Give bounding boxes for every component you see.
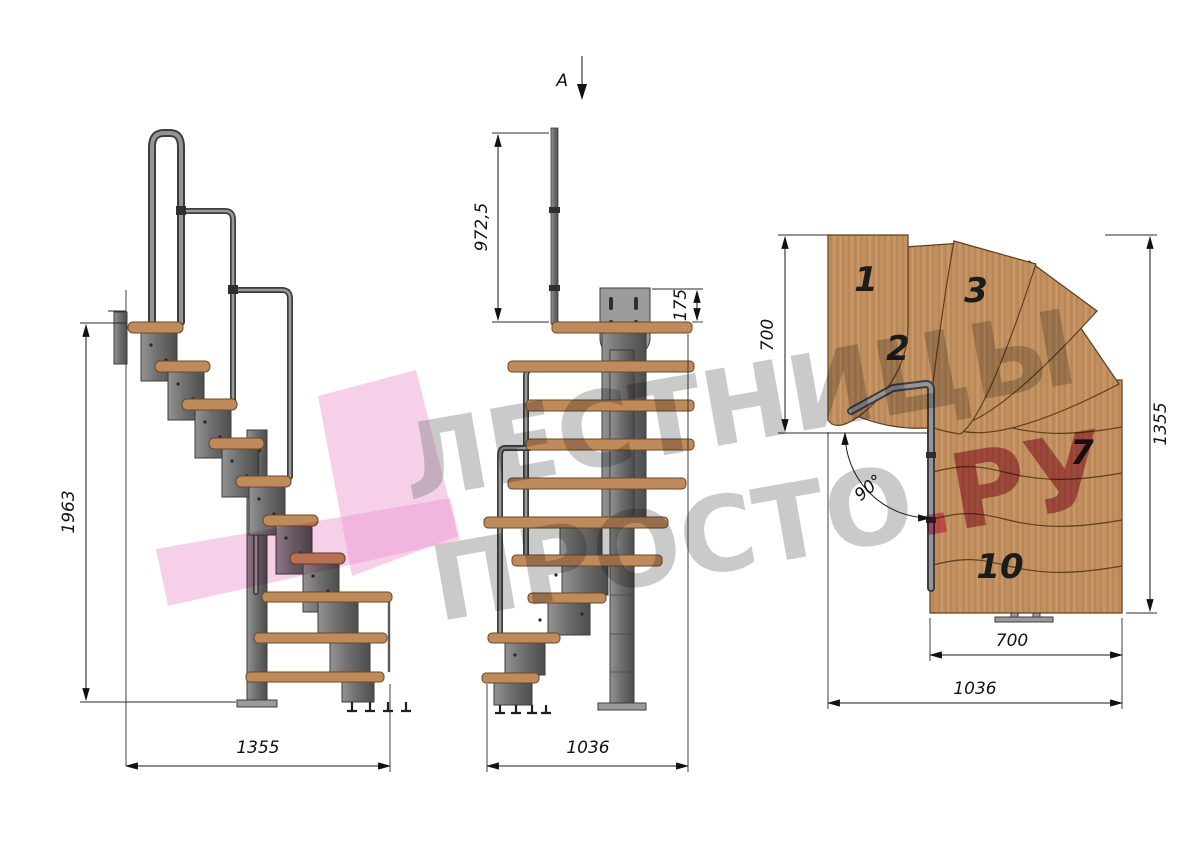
section-arrowhead: [577, 84, 587, 100]
anchor-bolts: [347, 702, 411, 711]
side-lower-flight: [246, 592, 411, 711]
plan-total-depth-label: 1355: [1151, 402, 1171, 445]
plan-total-width-label: 1036: [953, 679, 996, 699]
front-rail-height-dimension: 972,5: [472, 133, 549, 322]
side-width-label: 1355: [236, 738, 279, 758]
tread-number-1: 1: [854, 260, 878, 300]
side-handrail-loop: [152, 133, 181, 325]
front-handrail-post: [549, 128, 560, 324]
plan-flight-width-label: 700: [996, 631, 1028, 651]
side-height-label: 1963: [59, 490, 79, 533]
front-rail-height-label: 972,5: [472, 203, 492, 252]
rail-clamp: [176, 206, 186, 215]
front-bracket-label: 175: [671, 289, 691, 321]
section-arrow: A: [555, 56, 587, 100]
section-label: A: [555, 71, 568, 91]
staircase-technical-drawing: 1963 1355 A 972,5: [0, 0, 1200, 849]
front-width-label: 1036: [566, 738, 609, 758]
plan-base-plate: [995, 613, 1053, 622]
anchor-bolts: [495, 705, 551, 713]
tread-number-10: 10: [976, 547, 1023, 587]
wall-mount-bracket: [114, 312, 127, 364]
rail-clamp: [228, 285, 238, 294]
front-bracket-dimension: 175: [652, 289, 703, 322]
